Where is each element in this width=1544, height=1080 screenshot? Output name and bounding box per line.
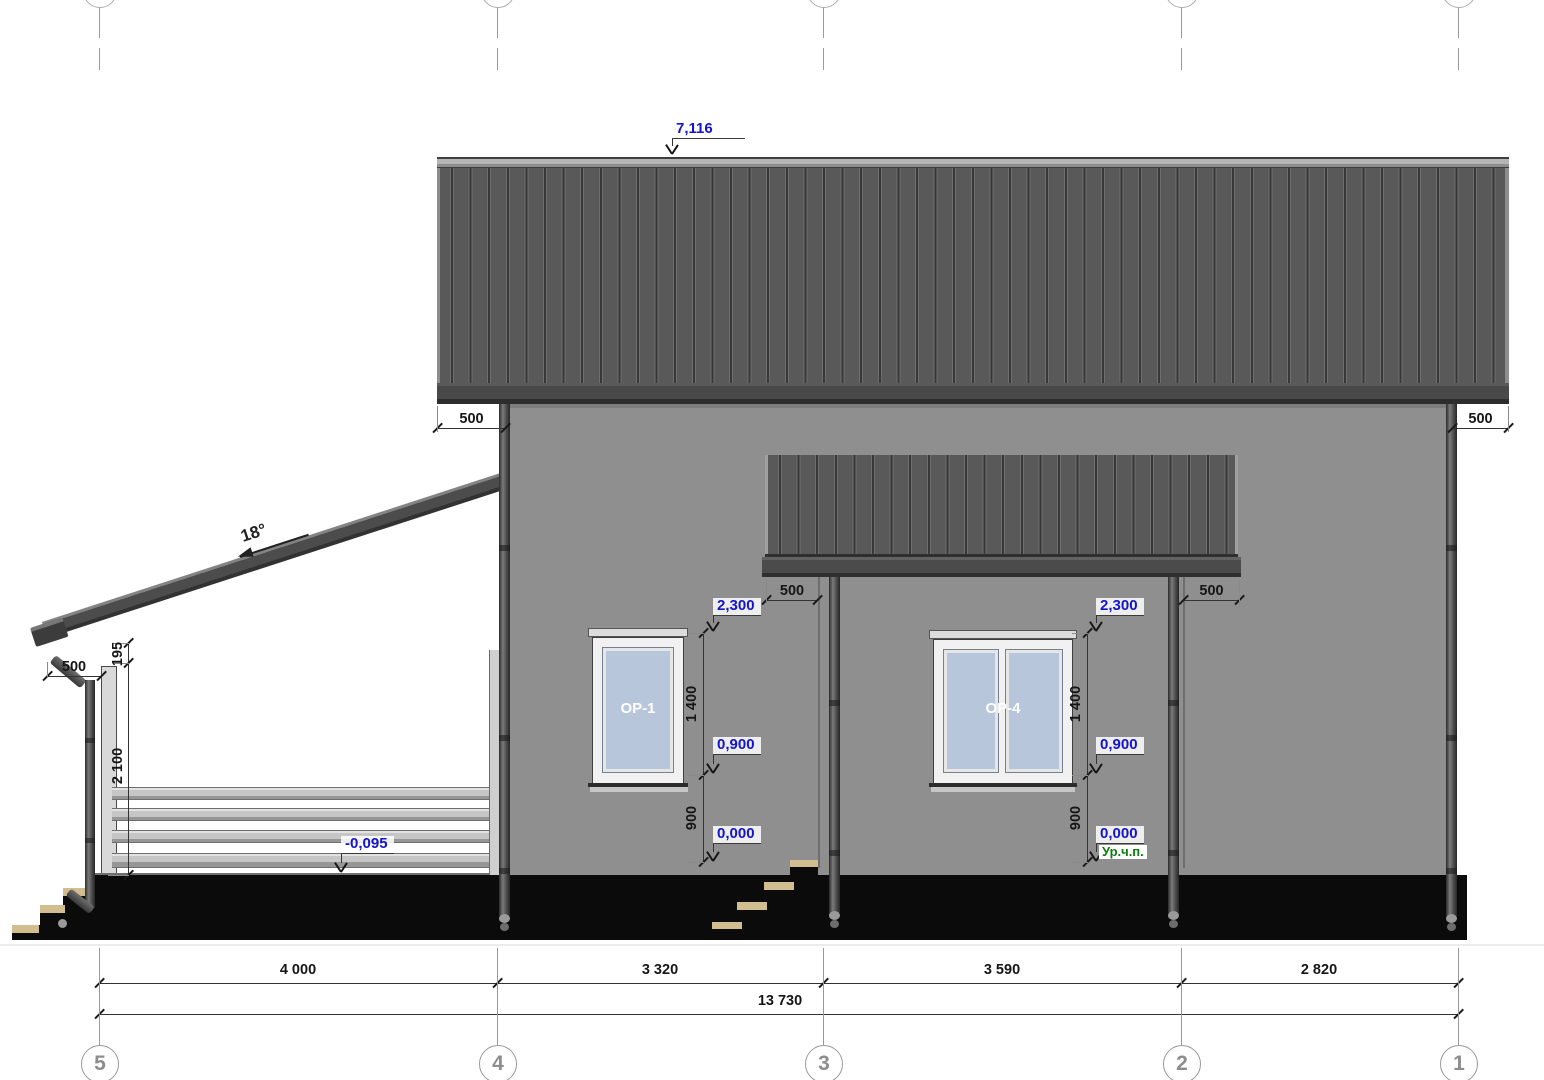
downpipe-coupling <box>829 700 840 706</box>
downpipe-cap <box>499 914 510 923</box>
eave-shadow <box>506 404 1452 408</box>
window-sill-dim-left: 900 <box>684 788 702 848</box>
grid-bubble-top-5 <box>83 0 117 8</box>
downpipe-cap <box>500 923 509 931</box>
window-height-dim-left: 1 400 <box>684 674 702 734</box>
railing-board <box>112 787 489 800</box>
porch-post-height-dim: 2 100 <box>110 736 128 796</box>
downpipe-coupling <box>1446 735 1457 741</box>
bay-dim-3-2: 3 590 <box>942 962 1062 978</box>
porch-roof-beam <box>42 472 508 638</box>
porch-beam-offset-dim: 195 <box>110 624 128 684</box>
elevation-arrow-icon <box>706 621 720 631</box>
roof-edge-right <box>1505 168 1509 383</box>
elevation-window-sill-left: 0,900 <box>713 737 761 755</box>
grid-line-top-1 <box>1458 0 1459 70</box>
canopy-fascia <box>762 557 1241 577</box>
window-height-dim-right: 1 400 <box>1068 674 1086 734</box>
downpipe-corner-right <box>1446 404 1457 916</box>
grid-bubble-top-1 <box>1442 0 1476 8</box>
downpipe-cap <box>58 919 67 928</box>
downpipe-coupling <box>499 868 510 874</box>
eave-dim-line-left <box>437 428 506 429</box>
railing-board <box>112 808 489 821</box>
porch-dim-line <box>128 643 129 875</box>
window-op1-head-flashing <box>588 628 688 637</box>
stair-tread <box>712 922 742 929</box>
canopy-dim-line-right <box>1183 600 1240 601</box>
total-width-dim: 13 730 <box>720 993 840 1009</box>
canopy-edge-left <box>765 455 768 554</box>
grid-bubble-2: 2 <box>1163 1045 1201 1080</box>
dim-extension <box>108 875 129 876</box>
grid-line-bottom-4 <box>497 948 498 1045</box>
elevation-window-head-left: 2,300 <box>713 598 761 616</box>
elevation-arrow-icon <box>665 144 679 154</box>
downpipe-coupling <box>85 838 95 843</box>
dim-extension <box>1072 633 1088 634</box>
downpipe-cap <box>1169 920 1178 928</box>
downpipe-porch <box>85 680 95 908</box>
stair-tread <box>12 925 39 933</box>
window-op4-sill-board <box>931 787 1075 792</box>
downpipe-coupling <box>1446 545 1457 551</box>
downpipe-cap <box>829 911 840 920</box>
window-dim-line-right <box>1087 633 1088 862</box>
canopy-overhang-dim-right: 500 <box>1183 583 1240 599</box>
downpipe-cap <box>830 920 839 928</box>
downpipe-coupling <box>499 735 510 741</box>
elevation-arrow-icon <box>706 851 720 861</box>
elevation-drawing-canvas: ОР-1 ОР-4 18° 7,11 <box>0 0 1544 1080</box>
eave-overhang-dim-left: 500 <box>437 411 506 427</box>
downpipe-coupling <box>85 738 95 743</box>
grid-bubble-top-4 <box>481 0 515 8</box>
elevation-arrow-icon <box>334 862 348 872</box>
stair-tread <box>764 882 794 890</box>
window-op1-sill-board <box>590 787 688 792</box>
grid-line-bottom-2 <box>1181 948 1182 1045</box>
entrance-step-block <box>790 866 818 878</box>
downpipe-cap <box>1446 914 1457 923</box>
grid-line-top-2 <box>1181 0 1182 70</box>
canopy-edge-right <box>1235 455 1238 554</box>
bottom-dim-line <box>99 983 1459 984</box>
canopy-overhang-dim-left: 500 <box>766 583 818 599</box>
downpipe-cap <box>1447 923 1456 931</box>
floor-level-note: Ур.ч.п. <box>1099 845 1147 859</box>
downpipe-cap <box>1168 911 1179 920</box>
stair-tread <box>40 905 65 913</box>
downpipe-coupling <box>1446 868 1457 874</box>
elevation-window-sill-right: 0,900 <box>1096 737 1144 755</box>
eave-overhang-dim-right: 500 <box>1452 411 1509 427</box>
grid-line-bottom-1 <box>1458 948 1459 1045</box>
entrance-corner-right <box>1183 577 1185 868</box>
roof-fascia <box>437 383 1509 404</box>
window-op1-label: ОР-1 <box>592 700 684 717</box>
bay-dim-5-4: 4 000 <box>238 962 358 978</box>
porch-overhang-dim-line <box>47 676 101 677</box>
grid-bubble-4: 4 <box>479 1045 517 1080</box>
canopy-dim-line-left <box>766 600 818 601</box>
roof-panels <box>437 168 1509 383</box>
roof-edge-left <box>437 168 440 383</box>
elevation-window-head-right: 2,300 <box>1096 598 1144 616</box>
downpipe-canopy-left <box>829 577 840 913</box>
dim-extension <box>1074 862 1088 863</box>
grid-line-top-3 <box>823 0 824 70</box>
railing-board <box>112 830 489 843</box>
canopy-panels <box>765 455 1238 554</box>
downpipe-coupling <box>499 545 510 551</box>
railing-board <box>112 853 489 868</box>
bay-dim-4-3: 3 320 <box>600 962 720 978</box>
entrance-corner-left <box>818 577 820 868</box>
window-sill-dim-right: 900 <box>1068 788 1086 848</box>
porch-overhang-dim: 500 <box>47 659 101 675</box>
downpipe-canopy-right <box>1168 577 1179 913</box>
downpipe-coupling <box>829 850 840 856</box>
grid-bubble-3: 3 <box>805 1045 843 1080</box>
stair-tread <box>790 860 818 867</box>
stair-tread <box>737 902 767 910</box>
elevation-floor-left: 0,000 <box>713 826 761 844</box>
eave-dim-line-right <box>1452 428 1509 429</box>
downpipe-coupling <box>1168 700 1179 706</box>
grid-line-top-5 <box>99 0 100 70</box>
sheet-edge-line <box>0 944 1544 946</box>
window-dim-line-left <box>703 633 704 862</box>
window-op4-label: ОР-4 <box>933 700 1073 717</box>
bay-dim-2-1: 2 820 <box>1259 962 1379 978</box>
total-dim-line <box>99 1014 1459 1015</box>
grid-line-bottom-3 <box>823 948 824 1045</box>
dim-extension <box>688 633 704 634</box>
grid-bubble-1: 1 <box>1440 1045 1478 1080</box>
porch-gutter-end <box>30 617 69 647</box>
downpipe-coupling <box>1168 850 1179 856</box>
elevation-arrow-icon <box>706 763 720 773</box>
grid-bubble-top-2 <box>1165 0 1199 8</box>
downpipe-corner-left <box>499 404 510 916</box>
dim-extension <box>690 862 704 863</box>
grid-line-bottom-5 <box>99 948 100 1045</box>
dim-extension <box>688 775 704 776</box>
window-op4-head-flashing <box>929 630 1077 639</box>
elevation-porch-floor: -0,095 <box>341 836 394 854</box>
elevation-ridge: 7,116 <box>672 121 745 139</box>
grid-line-top-4 <box>497 0 498 70</box>
elevation-floor-right: 0,000 <box>1096 826 1144 844</box>
dim-extension <box>1072 775 1088 776</box>
grid-bubble-top-3 <box>807 0 841 8</box>
porch-floor-edge <box>87 873 489 875</box>
grid-bubble-5: 5 <box>81 1045 119 1080</box>
